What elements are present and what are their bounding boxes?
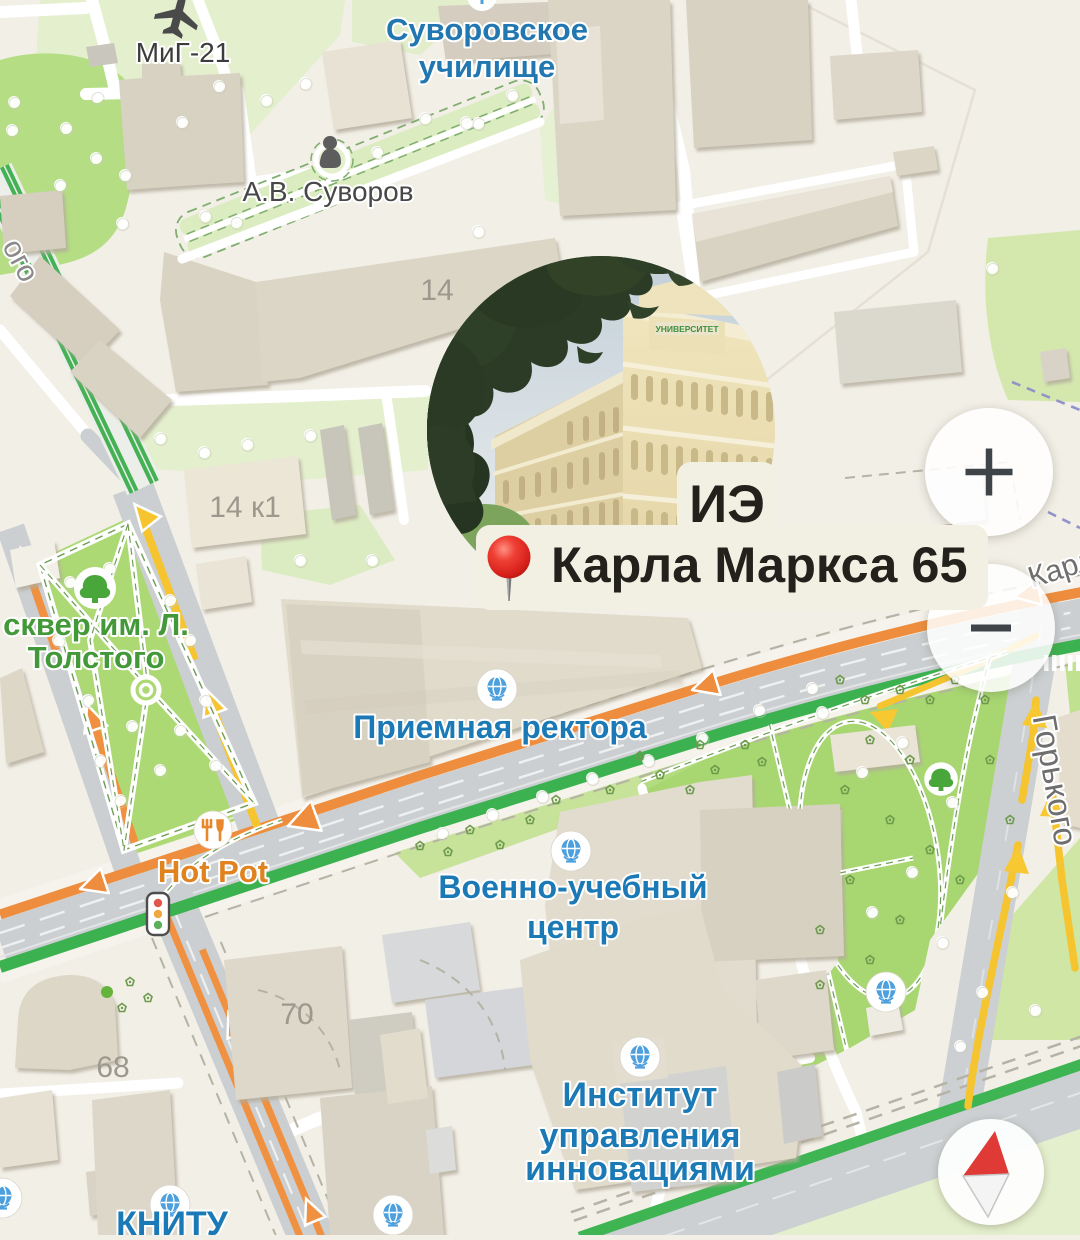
svg-text:Приемная ректора: Приемная ректора <box>353 709 647 745</box>
svg-text:центр: центр <box>527 909 619 945</box>
svg-text:инновациями: инновациями <box>525 1150 755 1188</box>
svg-text:МиГ-21: МиГ-21 <box>136 37 231 68</box>
svg-text:Военно-учебный: Военно-учебный <box>438 869 707 905</box>
svg-text:А.В. Суворов: А.В. Суворов <box>242 176 413 207</box>
svg-text:КНИТУ: КНИТУ <box>116 1205 229 1235</box>
svg-text:14 к1: 14 к1 <box>209 491 281 524</box>
svg-text:Толстого: Толстого <box>28 640 165 675</box>
svg-text:сквер им. Л.: сквер им. Л. <box>3 607 189 642</box>
svg-text:училище: училище <box>419 49 555 84</box>
svg-text:Суворовское: Суворовское <box>386 12 588 47</box>
svg-text:68: 68 <box>96 1051 129 1084</box>
svg-text:УНИВЕРСИТЕТ: УНИВЕРСИТЕТ <box>655 324 719 334</box>
svg-text:70: 70 <box>280 998 313 1031</box>
svg-text:Институт: Институт <box>563 1076 718 1114</box>
svg-text:Hot Pot: Hot Pot <box>158 854 268 889</box>
